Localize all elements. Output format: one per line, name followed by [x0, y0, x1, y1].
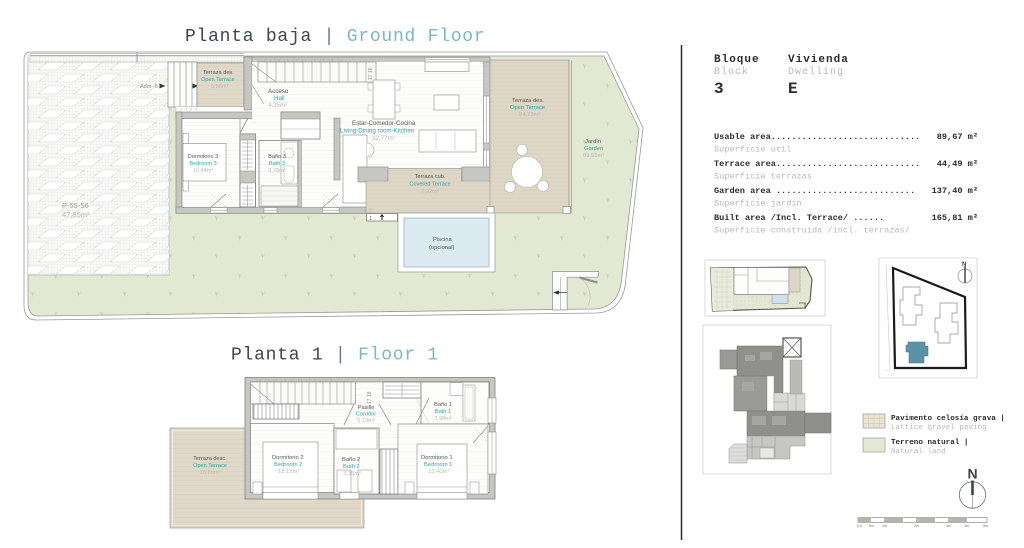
- svg-text:Dormitorio 2: Dormitorio 2: [272, 455, 304, 461]
- svg-text:Covered Terrace: Covered Terrace: [409, 182, 450, 188]
- svg-text:Bedroom 1: Bedroom 1: [424, 462, 452, 468]
- svg-text:Vivienda: Vivienda: [788, 54, 849, 66]
- svg-text:Garden area ..................: Garden area ...........................: [714, 186, 915, 196]
- svg-text:Piscina: Piscina: [433, 237, 452, 243]
- svg-text:4m: 4m: [964, 524, 969, 528]
- svg-text:1 2 3 4 5 6: 1 2 3 4 5 6: [170, 108, 198, 112]
- svg-text:Garden: Garden: [584, 146, 603, 152]
- svg-text:Jardín: Jardín: [585, 139, 601, 145]
- svg-text:15,66m²: 15,66m²: [200, 470, 221, 476]
- svg-text:Superficie útil: Superficie útil: [714, 145, 791, 155]
- svg-text:Estar-Comedor-Cocina: Estar-Comedor-Cocina: [352, 120, 416, 127]
- svg-text:5m: 5m: [983, 524, 988, 528]
- svg-text:3,90m²: 3,90m²: [434, 416, 452, 422]
- svg-text:24,73m²: 24,73m²: [519, 112, 540, 118]
- svg-text:Planta 1 | Floor 1: Planta 1 | Floor 1: [231, 346, 439, 366]
- svg-text:12,12m²: 12,12m²: [278, 469, 299, 475]
- svg-text:Open Terrace: Open Terrace: [201, 77, 235, 83]
- svg-text:Superficie terrazas: Superficie terrazas: [714, 172, 812, 182]
- svg-text:5,56m²: 5,56m²: [211, 84, 229, 90]
- svg-text:Usable area...................: Usable area.............................: [714, 132, 920, 142]
- svg-text:P-55-56: P-55-56: [62, 201, 89, 210]
- svg-text:Terraza desc.: Terraza desc.: [193, 456, 227, 462]
- svg-text:Hall: Hall: [274, 95, 285, 102]
- svg-text:Superficie construida /incl. t: Superficie construida /incl. terrazas/: [714, 226, 910, 236]
- svg-text:E: E: [788, 80, 798, 98]
- svg-text:Planta baja | Ground Floor: Planta baja | Ground Floor: [185, 27, 485, 47]
- svg-text:Block: Block: [714, 66, 749, 78]
- svg-text:47,85m²: 47,85m²: [62, 210, 90, 219]
- svg-text:2m: 2m: [914, 524, 919, 528]
- svg-text:Living-Dining room-Kitchen: Living-Dining room-Kitchen: [340, 128, 415, 135]
- svg-text:3m: 3m: [946, 524, 951, 528]
- svg-text:137,40 m²: 137,40 m²: [932, 186, 978, 196]
- svg-text:89,67 m²: 89,67 m²: [937, 132, 978, 142]
- svg-text:7,92m²: 7,92m²: [421, 189, 439, 195]
- svg-text:Built area /Incl. Terrace/ ...: Built area /Incl. Terrace/ ......: [714, 213, 884, 223]
- svg-text:Bedroom 2: Bedroom 2: [274, 462, 302, 468]
- svg-text:Terraza des.: Terraza des.: [203, 70, 234, 76]
- svg-text:Baño 1: Baño 1: [434, 402, 452, 408]
- svg-text:Terraza des.: Terraza des.: [512, 98, 544, 104]
- svg-text:Corridor: Corridor: [356, 412, 376, 418]
- svg-text:Dormitorio 1: Dormitorio 1: [421, 455, 453, 461]
- svg-text:89,55m²: 89,55m²: [583, 153, 604, 159]
- svg-text:Open Terrace: Open Terrace: [193, 463, 227, 469]
- svg-text:N: N: [962, 262, 966, 268]
- svg-text:Pasillo: Pasillo: [358, 405, 374, 411]
- svg-text:32,77m²: 32,77m²: [372, 135, 395, 142]
- svg-text:Open Terrace: Open Terrace: [510, 105, 545, 111]
- svg-text:Dwelling: Dwelling: [788, 66, 844, 78]
- svg-text:13,40m²: 13,40m²: [428, 469, 449, 475]
- svg-text:(opcional): (opcional): [429, 245, 455, 251]
- svg-text:1m: 1m: [882, 524, 887, 528]
- svg-text:10,44m²: 10,44m²: [193, 168, 214, 174]
- svg-text:165,81 m²: 165,81 m²: [932, 213, 978, 223]
- svg-text:17 18: 17 18: [367, 391, 373, 404]
- svg-text:Acceso: Acceso: [268, 88, 289, 95]
- svg-text:3: 3: [714, 80, 724, 98]
- svg-text:44,49 m²: 44,49 m²: [937, 159, 978, 169]
- svg-text:Natural land: Natural land: [891, 448, 946, 456]
- svg-text:Bloque: Bloque: [714, 54, 760, 66]
- svg-text:3,78m²: 3,78m²: [268, 168, 286, 174]
- svg-text:16 15 14 13 12 11 10 9 8 7 6: 16 15 14 13 12 11 10 9 8 7 6: [256, 379, 333, 383]
- svg-text:Terraza cub.: Terraza cub.: [415, 174, 446, 180]
- svg-text:1: 1: [369, 216, 372, 222]
- svg-text:Terreno natural |: Terreno natural |: [891, 439, 968, 447]
- svg-text:Superficie jardín: Superficie jardín: [714, 199, 802, 209]
- svg-text:5,19m²: 5,19m²: [357, 418, 375, 424]
- svg-text:Pavimento celosía grava |: Pavimento celosía grava |: [891, 415, 1005, 423]
- svg-text:Bedroom 3: Bedroom 3: [189, 161, 216, 167]
- svg-text:Baño 2: Baño 2: [342, 457, 360, 463]
- svg-text:2: 2: [369, 209, 372, 215]
- svg-text:0m: 0m: [869, 524, 874, 528]
- svg-text:4,25m²: 4,25m²: [268, 102, 287, 109]
- svg-text:3,35m²: 3,35m²: [343, 471, 361, 477]
- svg-text:0.5: 0.5: [857, 524, 862, 528]
- svg-text:7 8 9 10 11 12 13 14 15 16 17: 7 8 9 10 11 12 13 14 15 16 17: [258, 59, 344, 63]
- svg-text:Bath 3: Bath 3: [269, 161, 285, 167]
- svg-text:Baño 3: Baño 3: [268, 154, 286, 160]
- svg-text:Adm- 6: Adm- 6: [140, 84, 158, 90]
- svg-text:Bath 1: Bath 1: [435, 409, 451, 415]
- svg-text:Lattice gravel paving: Lattice gravel paving: [891, 424, 987, 432]
- svg-text:Dormitorio 3: Dormitorio 3: [188, 154, 218, 160]
- svg-text:17 16: 17 16: [368, 67, 374, 80]
- svg-text:N: N: [967, 466, 977, 482]
- svg-text:Bath 2: Bath 2: [343, 464, 360, 470]
- svg-text:Terrace area..................: Terrace area............................: [714, 159, 920, 169]
